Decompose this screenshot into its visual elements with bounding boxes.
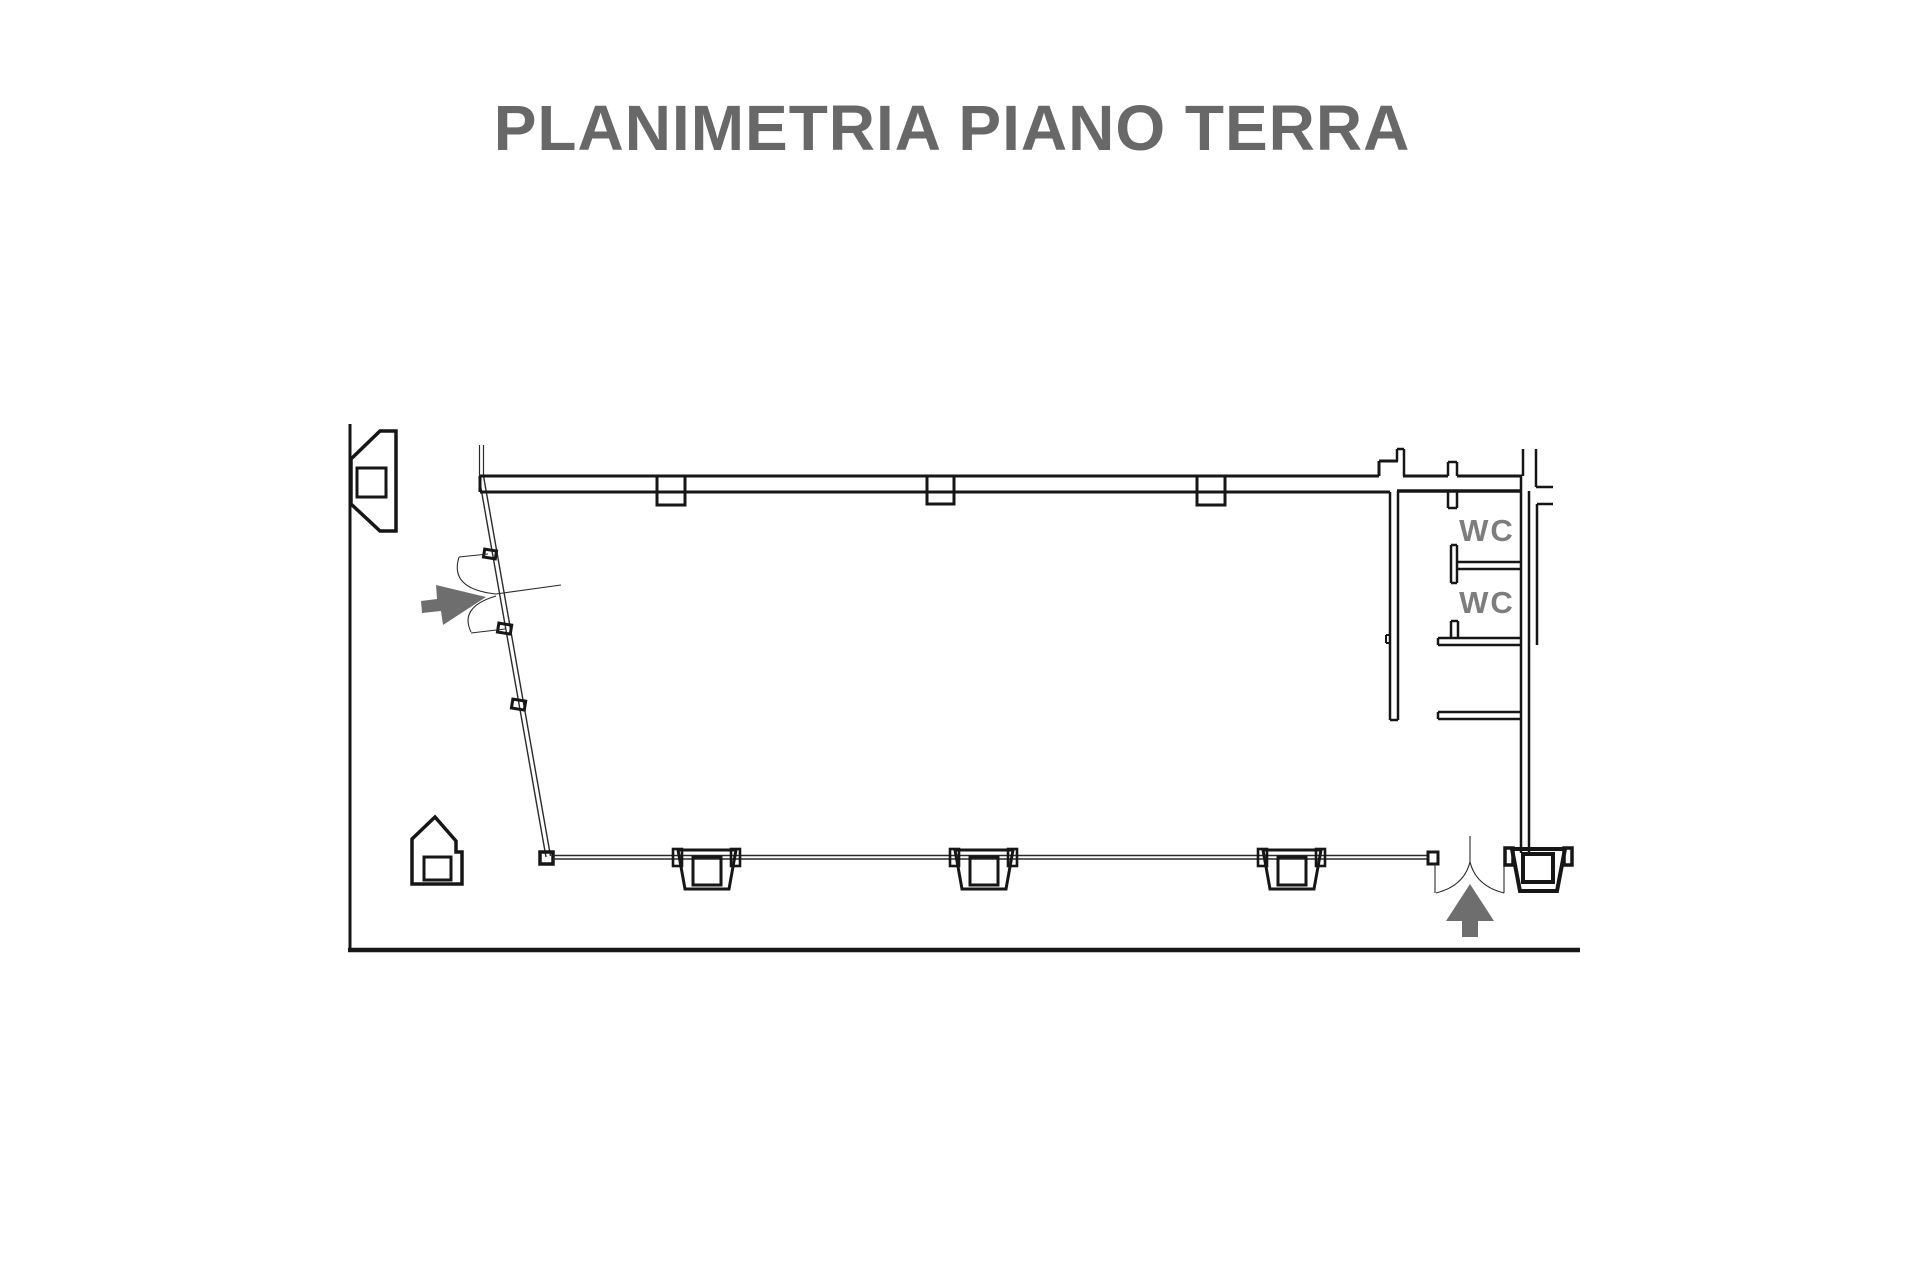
wc1-label: WC: [1459, 513, 1515, 548]
plan-border: [348, 424, 1580, 951]
top-wall: [480, 449, 1523, 492]
wc-block: WC WC: [1386, 449, 1553, 853]
floor-plan-drawing: PLANIMETRIA PIANO TERRA: [0, 0, 1920, 1280]
entrance-trapezoid: [1505, 848, 1572, 891]
page-title: PLANIMETRIA PIANO TERRA: [494, 92, 1411, 164]
floor-plan-page: PLANIMETRIA PIANO TERRA: [0, 0, 1920, 1280]
entrance-arrow-bottom-icon: [1446, 884, 1494, 937]
column-marker-top-left: [351, 431, 396, 531]
entrance-door-bottom: [1428, 836, 1504, 893]
column-marker-bottom-left: [412, 817, 462, 884]
slanted-facade-wall: [479, 445, 551, 857]
wall-pillar: [927, 476, 954, 504]
wc2-label: WC: [1459, 585, 1515, 620]
